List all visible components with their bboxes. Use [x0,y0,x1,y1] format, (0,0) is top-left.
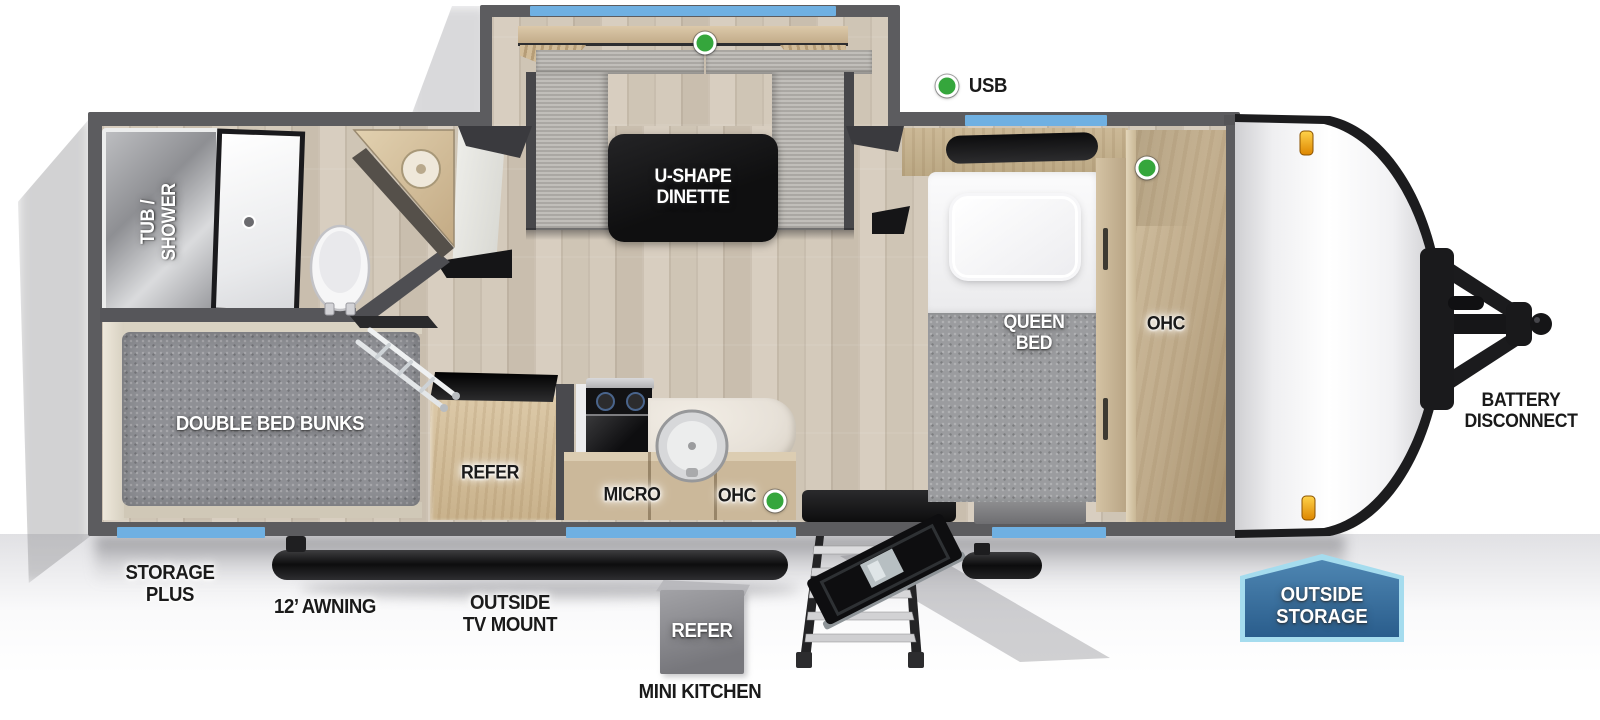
hitch-a-frame [1420,248,1552,410]
awning-tube [272,550,788,580]
dinette-usb-dot [694,32,717,55]
refer-interior-label: REFER [461,464,519,485]
bunk-ladder [358,330,460,412]
awning-label: 12’ AWNING [274,596,376,618]
toilet [311,226,369,315]
mini-kitchen-label: MINI KITCHEN [639,681,762,703]
shower-drain [243,216,255,228]
awning-bracket [286,536,306,552]
outside-tv-mount-label: OUTSIDE TV MOUNT [463,592,557,636]
front-cap [1224,114,1445,538]
bathroom-vanity [354,130,454,246]
usb-label: USB [969,75,1007,97]
kitchen-ohc-label: OHC [718,487,756,508]
storage-plus-label: STORAGE PLUS [125,562,214,606]
micro-label: MICRO [603,486,660,507]
floorplan-canvas: USB U-SHAPE DINETTE TUB / SHOWER QUEEN B… [0,0,1600,720]
outside-refer-label: REFER [671,620,732,642]
bedroom-ohc-label: OHC [1147,315,1185,336]
double-bed-bunks-label: DOUBLE BED BUNKS [176,413,364,435]
bedroom-ohc-dot [1136,157,1159,180]
usb-callout-dot [936,75,959,98]
queen-bed-label: QUEEN BED [1004,313,1065,355]
grab-handle-cylinder [962,552,1042,579]
bathroom-walls [100,126,904,328]
tub-shower-label: TUB / SHOWER [139,183,181,260]
dinette-table-label: U-SHAPE DINETTE [655,167,732,209]
kitchen-sink [657,411,727,481]
outside-storage-label: OUTSIDE STORAGE [1276,584,1368,628]
kitchen-ohc-dot [764,490,787,513]
battery-disconnect-label: BATTERY DISCONNECT [1464,391,1577,433]
grab-handle-bracket [974,543,990,555]
